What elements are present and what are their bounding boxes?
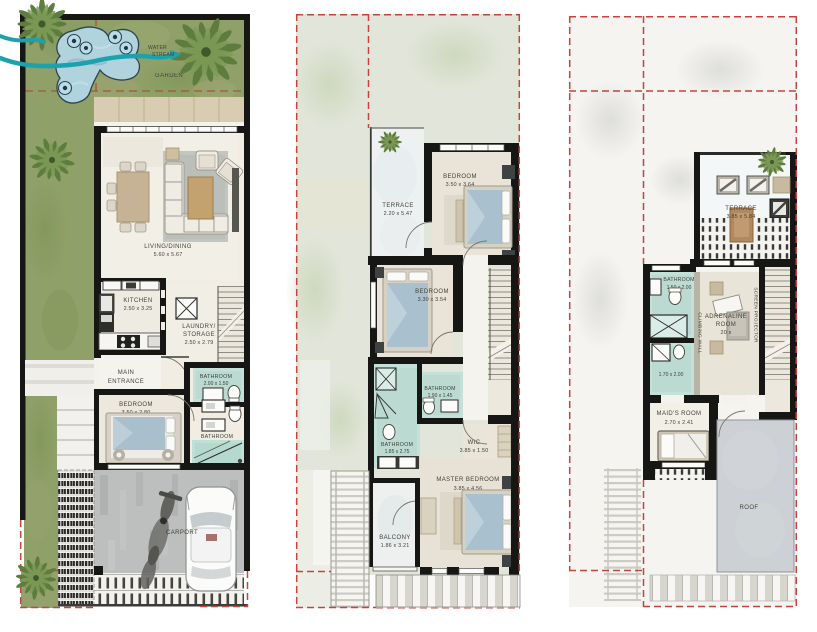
- svg-text:3.85 x 5.84: 3.85 x 5.84: [727, 214, 756, 220]
- svg-text:LIVING/DINING: LIVING/DINING: [144, 244, 192, 250]
- svg-text:2.50 x 3.25: 2.50 x 3.25: [124, 306, 153, 312]
- svg-text:1.85 x 2.75: 1.85 x 2.75: [385, 449, 410, 455]
- svg-text:ADRENALINE: ADRENALINE: [705, 314, 747, 320]
- svg-text:CARPORT: CARPORT: [166, 530, 198, 536]
- svg-text:5.60 x 5.67: 5.60 x 5.67: [154, 252, 183, 258]
- svg-text:ROOF: ROOF: [740, 505, 759, 511]
- svg-text:STREAM: STREAM: [152, 52, 175, 58]
- svg-text:WATER: WATER: [148, 45, 167, 51]
- svg-text:3.85 x 1.50: 3.85 x 1.50: [460, 448, 489, 454]
- svg-text:BEDROOM: BEDROOM: [119, 402, 153, 408]
- svg-text:GARDEN: GARDEN: [155, 73, 183, 79]
- svg-text:SCREEN PROJECTOR: SCREEN PROJECTOR: [753, 287, 759, 343]
- svg-text:BATHROOM: BATHROOM: [663, 277, 694, 283]
- svg-text:BATHROOM: BATHROOM: [381, 442, 414, 448]
- svg-text:20 x: 20 x: [721, 330, 732, 336]
- svg-text:TERRACE: TERRACE: [725, 206, 756, 212]
- svg-text:BALCONY: BALCONY: [379, 535, 410, 541]
- svg-text:3.50 x 3.64: 3.50 x 3.64: [446, 182, 475, 188]
- svg-text:TERRACE: TERRACE: [382, 203, 413, 209]
- svg-text:LAUNDRY/: LAUNDRY/: [182, 324, 215, 330]
- svg-text:BATHROOM: BATHROOM: [424, 386, 455, 392]
- svg-text:BEDROOM: BEDROOM: [443, 174, 477, 180]
- svg-text:1.70 x 2.00: 1.70 x 2.00: [659, 372, 684, 378]
- svg-text:ENTRANCE: ENTRANCE: [108, 379, 144, 385]
- svg-text:MASTER BEDROOM: MASTER BEDROOM: [436, 477, 499, 483]
- svg-text:2.00 x 1.50: 2.00 x 1.50: [204, 381, 229, 387]
- svg-text:1.86 x 3.21: 1.86 x 3.21: [381, 543, 410, 549]
- svg-text:2.20 x 5.47: 2.20 x 5.47: [384, 211, 413, 217]
- svg-text:ROOM: ROOM: [716, 322, 736, 328]
- svg-text:BATHROOM: BATHROOM: [200, 374, 233, 380]
- svg-text:2.70 x 2.41: 2.70 x 2.41: [665, 420, 694, 426]
- svg-text:MAIN: MAIN: [118, 370, 135, 376]
- svg-text:CLIMBING WALL: CLIMBING WALL: [697, 312, 703, 353]
- svg-text:STORAGE: STORAGE: [183, 332, 215, 338]
- svg-text:3.30 x 3.54: 3.30 x 3.54: [418, 297, 447, 303]
- svg-text:KITCHEN: KITCHEN: [123, 298, 152, 304]
- svg-text:2.50 x 2.79: 2.50 x 2.79: [185, 340, 214, 346]
- svg-text:BEDROOM: BEDROOM: [415, 289, 449, 295]
- svg-text:MAID'S ROOM: MAID'S ROOM: [657, 411, 702, 417]
- svg-text:BATHROOM: BATHROOM: [201, 434, 234, 440]
